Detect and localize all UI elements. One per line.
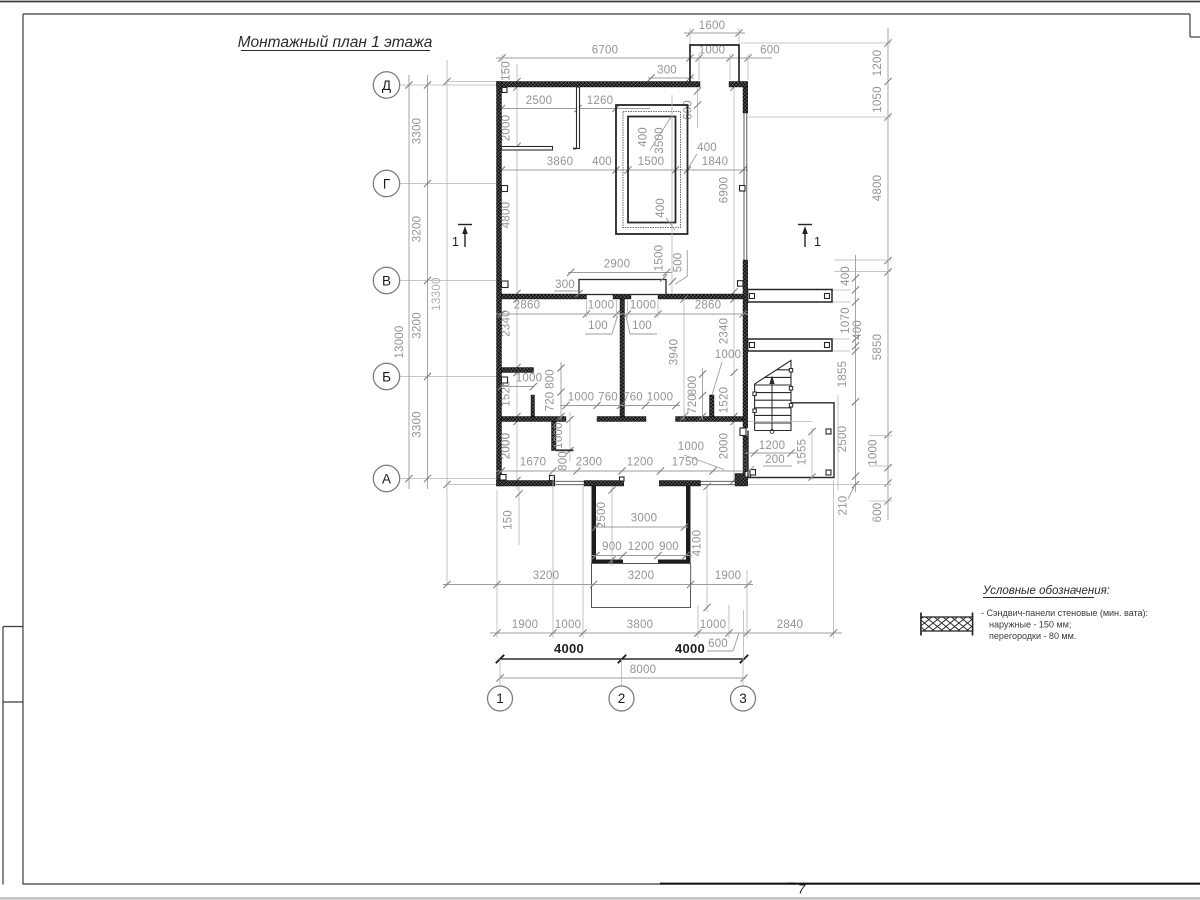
svg-text:3200: 3200 [412, 312, 424, 338]
svg-text:4800: 4800 [501, 202, 513, 228]
svg-text:800: 800 [687, 376, 699, 396]
svg-text:3200: 3200 [533, 570, 559, 582]
svg-text:1000: 1000 [715, 349, 741, 361]
svg-text:1840: 1840 [702, 156, 728, 168]
svg-text:2000: 2000 [501, 115, 513, 141]
svg-text:1260: 1260 [587, 95, 613, 107]
svg-text:1200: 1200 [628, 541, 654, 553]
svg-text:1520: 1520 [501, 380, 513, 406]
svg-text:2900: 2900 [604, 259, 630, 271]
svg-text:5850: 5850 [872, 334, 884, 360]
svg-text:1600: 1600 [699, 20, 725, 32]
svg-text:210: 210 [838, 496, 850, 516]
svg-text:Б: Б [382, 369, 391, 384]
svg-text:3800: 3800 [627, 619, 653, 631]
svg-text:300: 300 [555, 279, 575, 291]
svg-text:600: 600 [683, 100, 695, 120]
svg-text:720: 720 [545, 392, 557, 412]
svg-text:3940: 3940 [669, 339, 681, 365]
svg-text:1000: 1000 [700, 619, 726, 631]
svg-text:3: 3 [739, 691, 747, 706]
svg-text:300: 300 [657, 65, 677, 77]
svg-text:1000: 1000 [868, 439, 880, 465]
svg-text:2860: 2860 [514, 300, 540, 312]
svg-text:2300: 2300 [576, 457, 602, 469]
svg-text:В: В [382, 273, 391, 288]
svg-text:1500: 1500 [654, 245, 666, 271]
svg-text:4000: 4000 [554, 641, 584, 656]
svg-text:3000: 3000 [631, 513, 657, 525]
svg-text:1000: 1000 [553, 422, 565, 448]
svg-text:900: 900 [659, 541, 679, 553]
svg-text:6900: 6900 [719, 177, 731, 203]
svg-text:600: 600 [708, 638, 728, 650]
svg-text:400: 400 [697, 142, 717, 154]
svg-text:1000: 1000 [647, 392, 673, 404]
svg-text:Д: Д [382, 78, 391, 93]
svg-text:3200: 3200 [412, 216, 424, 242]
svg-text:400: 400 [655, 198, 667, 218]
svg-text:2840: 2840 [777, 619, 803, 631]
svg-text:720: 720 [687, 394, 699, 414]
svg-text:3200: 3200 [628, 570, 654, 582]
svg-text:400: 400 [840, 266, 852, 286]
svg-text:Монтажный план 1 этажа: Монтажный план 1 этажа [238, 34, 433, 51]
svg-text:1000: 1000 [555, 619, 581, 631]
svg-text:2000: 2000 [501, 433, 513, 459]
svg-text:500: 500 [673, 253, 685, 273]
svg-text:- Сэндвич-панели стеновые (мин: - Сэндвич-панели стеновые (мин. вата): [981, 608, 1148, 618]
svg-text:перегородки - 80 мм.: перегородки - 80 мм. [989, 631, 1076, 641]
svg-text:1000: 1000 [678, 441, 704, 453]
svg-text:400: 400 [592, 156, 612, 168]
svg-text:1555: 1555 [797, 439, 809, 465]
svg-text:3860: 3860 [547, 156, 573, 168]
svg-text:4100: 4100 [692, 530, 704, 556]
svg-text:760: 760 [598, 392, 618, 404]
svg-text:400: 400 [638, 127, 650, 147]
svg-text:900: 900 [602, 541, 622, 553]
svg-text:150: 150 [503, 510, 515, 530]
svg-text:4800: 4800 [872, 175, 884, 201]
svg-text:2500: 2500 [837, 426, 849, 452]
svg-text:1: 1 [814, 235, 821, 249]
svg-text:3300: 3300 [412, 411, 424, 437]
svg-text:1200: 1200 [872, 50, 884, 76]
svg-text:1520: 1520 [719, 387, 731, 413]
svg-text:1000: 1000 [630, 300, 656, 312]
svg-text:100: 100 [632, 320, 652, 332]
svg-text:1200: 1200 [627, 457, 653, 469]
svg-text:4000: 4000 [675, 641, 705, 656]
svg-text:2000: 2000 [719, 433, 731, 459]
svg-text:1200: 1200 [759, 440, 785, 452]
svg-text:400: 400 [852, 320, 864, 340]
svg-text:1: 1 [452, 235, 459, 249]
svg-text:1855: 1855 [837, 361, 849, 387]
svg-text:200: 200 [765, 454, 785, 466]
svg-text:2860: 2860 [695, 300, 721, 312]
svg-text:800: 800 [558, 451, 570, 471]
svg-text:А: А [382, 471, 391, 486]
svg-text:2500: 2500 [596, 502, 608, 528]
svg-text:600: 600 [760, 45, 780, 57]
svg-text:1000: 1000 [568, 392, 594, 404]
svg-text:6700: 6700 [592, 45, 618, 57]
svg-text:1070: 1070 [840, 307, 852, 333]
svg-text:1670: 1670 [520, 457, 546, 469]
svg-text:1900: 1900 [715, 570, 741, 582]
svg-text:1900: 1900 [512, 619, 538, 631]
svg-text:Условные обозначения:: Условные обозначения: [982, 585, 1110, 597]
svg-text:13000: 13000 [394, 326, 406, 359]
svg-text:3300: 3300 [412, 118, 424, 144]
svg-text:Г: Г [383, 176, 391, 191]
svg-text:1500: 1500 [638, 156, 664, 168]
svg-text:1000: 1000 [516, 373, 542, 385]
svg-text:2: 2 [618, 691, 626, 706]
svg-text:2340: 2340 [719, 318, 731, 344]
svg-text:1050: 1050 [872, 86, 884, 112]
svg-text:1000: 1000 [588, 300, 614, 312]
svg-text:800: 800 [545, 369, 557, 389]
svg-text:1000: 1000 [699, 45, 725, 57]
svg-text:8000: 8000 [630, 664, 656, 676]
svg-text:7: 7 [798, 882, 806, 897]
svg-text:2500: 2500 [526, 95, 552, 107]
svg-text:13300: 13300 [431, 277, 443, 310]
svg-text:1: 1 [496, 691, 504, 706]
svg-text:100: 100 [588, 320, 608, 332]
svg-text:760: 760 [623, 392, 643, 404]
svg-text:наружные - 150 мм;: наружные - 150 мм; [989, 620, 1071, 630]
svg-text:600: 600 [872, 503, 884, 523]
